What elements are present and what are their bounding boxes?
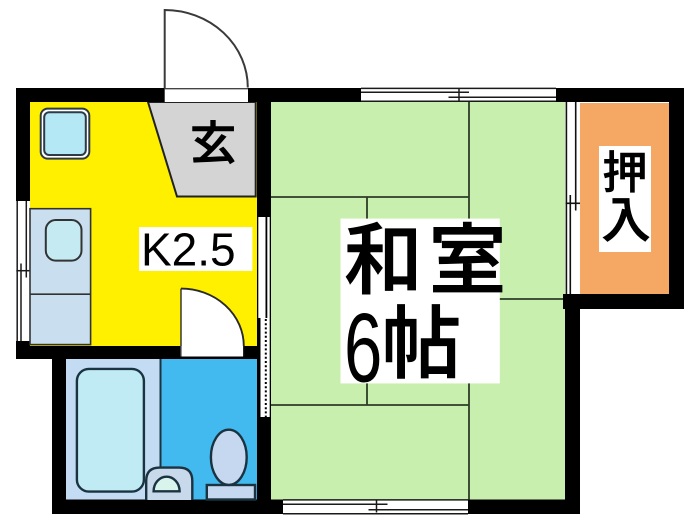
svg-text:6: 6 — [344, 293, 382, 403]
svg-text:K2.5: K2.5 — [141, 224, 236, 276]
